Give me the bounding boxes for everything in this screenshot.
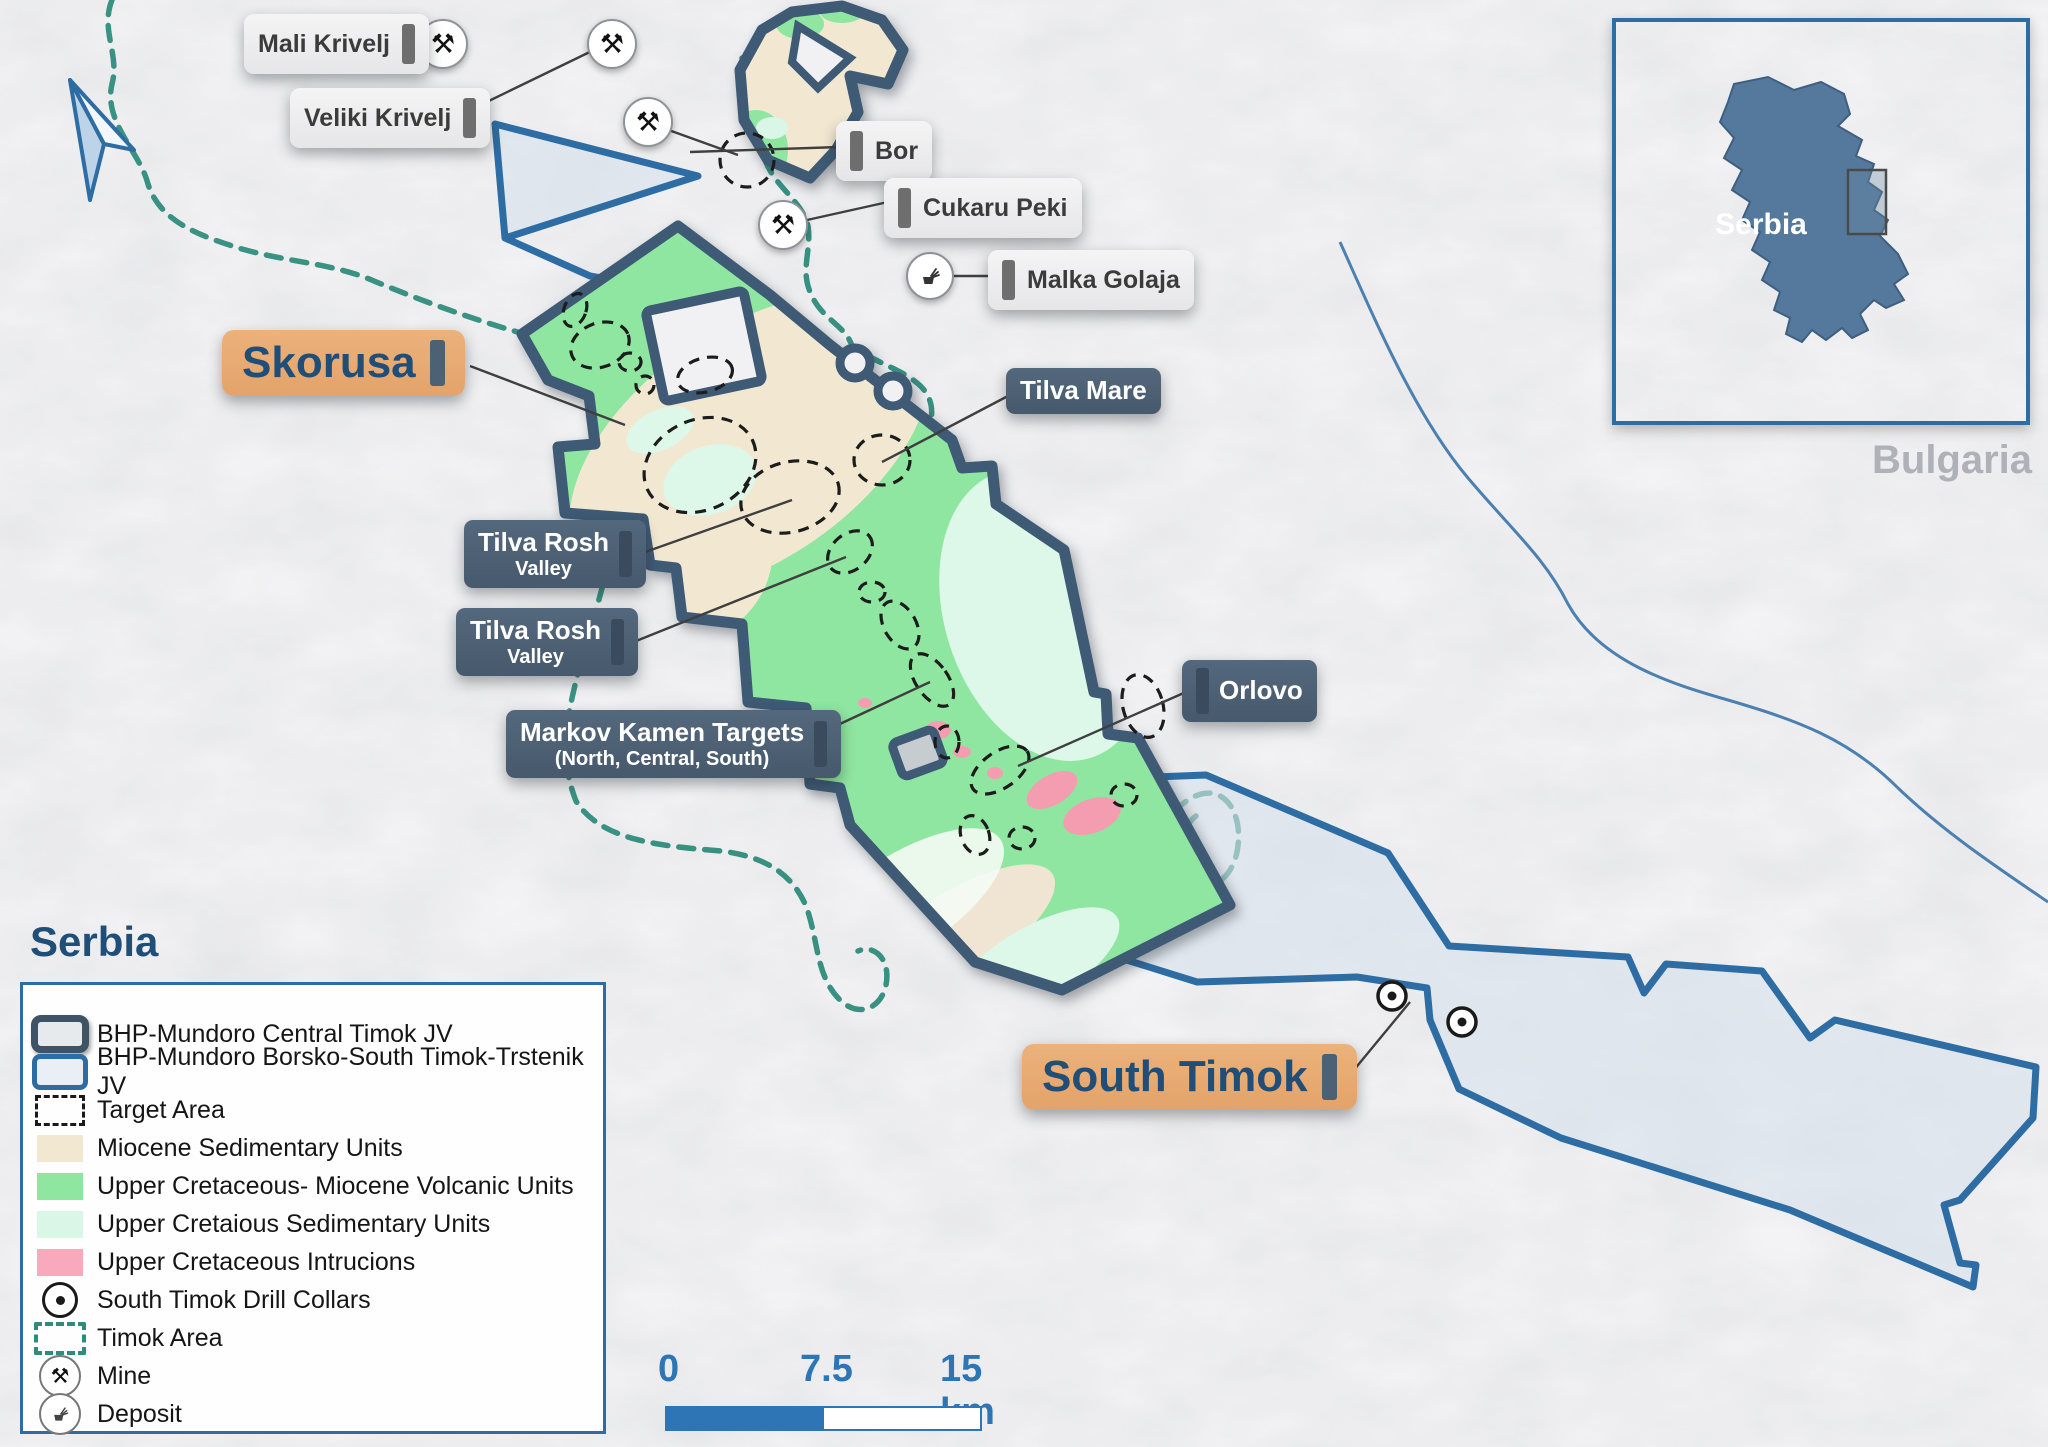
callout-skorusa: Skorusa xyxy=(222,330,465,396)
inset-extent-box xyxy=(1848,170,1886,234)
callout-anchor-bar xyxy=(1196,668,1209,714)
scale-mid: 7.5 xyxy=(800,1348,853,1391)
callout-mali-krivelj: Mali Krivelj xyxy=(244,14,429,74)
legend-row-deposit: Deposit xyxy=(23,1395,603,1433)
scale-bar-fill xyxy=(667,1408,824,1429)
callout-text: Orlovo xyxy=(1219,676,1303,706)
legend-label: Timok Area xyxy=(97,1324,223,1353)
callout-anchor-bar xyxy=(1002,260,1015,300)
callout-subtext: (North, Central, South) xyxy=(555,748,769,770)
legend-row-intrusions: Upper Cretaceous Intrucions xyxy=(23,1243,603,1281)
callout-orlovo: Orlovo xyxy=(1182,660,1317,722)
scale-start: 0 xyxy=(658,1348,679,1391)
deposit-icon xyxy=(39,1393,81,1435)
callout-anchor-bar xyxy=(898,188,911,228)
callout-malka-golaja: Malka Golaja xyxy=(988,250,1194,310)
callout-bor: Bor xyxy=(836,121,932,181)
legend-row-cretaceous-sedimentary: Upper Cretaious Sedimentary Units xyxy=(23,1205,603,1243)
callout-text: Skorusa xyxy=(242,338,416,388)
mine-icon: ⚒ xyxy=(758,200,808,250)
callout-text: Cukaru Peki xyxy=(923,194,1068,223)
callout-text: Mali Krivelj xyxy=(258,30,390,59)
callout-veliki-krivelj: Veliki Krivelj xyxy=(290,88,490,148)
callout-text: Tilva Rosh xyxy=(478,528,609,558)
intrusions-swatch xyxy=(37,1249,83,1276)
callout-anchor-bar xyxy=(611,619,624,665)
callout-subtext: Valley xyxy=(515,558,572,580)
drill-collar-icon xyxy=(42,1282,78,1318)
callout-text: Bor xyxy=(875,137,918,166)
callout-anchor-bar xyxy=(850,131,863,171)
mine-icon: ⚒ xyxy=(587,19,637,69)
miocene-swatch xyxy=(37,1135,83,1162)
legend-label: Miocene Sedimentary Units xyxy=(97,1134,403,1163)
central-timok-jv-swatch xyxy=(31,1015,89,1053)
inset-country-label: Serbia xyxy=(1715,208,1807,241)
cretaceous-sed-swatch xyxy=(37,1211,83,1238)
callout-text: Veliki Krivelj xyxy=(304,104,451,133)
small-enclave-box xyxy=(891,729,945,778)
callout-text: Markov Kamen Targets xyxy=(520,718,804,748)
mine-icon: ⚒ xyxy=(623,97,673,147)
legend-row-timok-area: Timok Area xyxy=(23,1319,603,1357)
callout-text: Malka Golaja xyxy=(1027,266,1180,295)
inset-map-serbia: Serbia xyxy=(1612,18,2030,425)
legend-label: Deposit xyxy=(97,1400,182,1429)
deposit-icon xyxy=(906,252,954,300)
callout-cukaru-peki: Cukaru Peki xyxy=(884,178,1082,238)
legend-row-miocene-sedimentary: Miocene Sedimentary Units xyxy=(23,1129,603,1167)
callout-anchor-bar xyxy=(619,531,632,577)
legend-label: BHP-Mundoro Borsko-South Timok-Trstenik … xyxy=(97,1043,603,1101)
volcanic-swatch xyxy=(37,1173,83,1200)
legend-label: Target Area xyxy=(97,1096,225,1125)
legend-label: Upper Cretaceous Intrucions xyxy=(97,1248,415,1277)
legend-row-volcanic-units: Upper Cretaceous- Miocene Volcanic Units xyxy=(23,1167,603,1205)
mine-icon: ⚒ xyxy=(39,1355,81,1397)
legend-label: Upper Cretaceous- Miocene Volcanic Units xyxy=(97,1172,574,1201)
mine-glyph: ⚒ xyxy=(771,210,795,241)
callout-tilva-mare: Tilva Mare xyxy=(1006,368,1161,414)
scale-bar-track xyxy=(665,1406,982,1431)
legend-row-borsko-jv: BHP-Mundoro Borsko-South Timok-Trstenik … xyxy=(23,1053,603,1091)
borsko-jv-swatch xyxy=(32,1054,88,1090)
timok-area-swatch xyxy=(34,1322,86,1355)
legend-label: Upper Cretaious Sedimentary Units xyxy=(97,1210,490,1239)
callout-subtext: Valley xyxy=(507,646,564,668)
excluded-area-notch xyxy=(646,291,763,402)
callout-anchor-bar xyxy=(463,98,476,138)
legend-panel: BHP-Mundoro Central Timok JV BHP-Mundoro… xyxy=(20,982,606,1434)
mine-glyph: ⚒ xyxy=(600,29,624,60)
legend-label: South Timok Drill Collars xyxy=(97,1286,371,1315)
callout-tilva-rosh-valley-2: Tilva Rosh Valley xyxy=(456,608,638,676)
mine-glyph: ⚒ xyxy=(431,29,455,60)
mine-glyph: ⚒ xyxy=(636,107,660,138)
callout-text: Tilva Rosh xyxy=(470,616,601,646)
callout-anchor-bar xyxy=(402,24,415,64)
target-area-swatch xyxy=(35,1095,85,1126)
country-label-bulgaria: Bulgaria xyxy=(1872,438,2032,483)
callout-markov-kamen: Markov Kamen Targets (North, Central, So… xyxy=(506,710,841,778)
callout-anchor-bar xyxy=(1322,1054,1337,1100)
legend-row-mine: ⚒ Mine xyxy=(23,1357,603,1395)
legend-row-drill-collars: South Timok Drill Collars xyxy=(23,1281,603,1319)
callout-anchor-bar xyxy=(814,721,827,767)
deposit-glyph xyxy=(918,264,942,288)
callout-south-timok: South Timok xyxy=(1022,1044,1357,1110)
callout-text: South Timok xyxy=(1042,1052,1308,1102)
callout-text: Tilva Mare xyxy=(1020,376,1147,406)
callout-anchor-bar xyxy=(430,340,445,386)
callout-tilva-rosh-valley-1: Tilva Rosh Valley xyxy=(464,520,646,588)
legend-label: Mine xyxy=(97,1362,151,1391)
country-label-serbia: Serbia xyxy=(30,918,158,966)
